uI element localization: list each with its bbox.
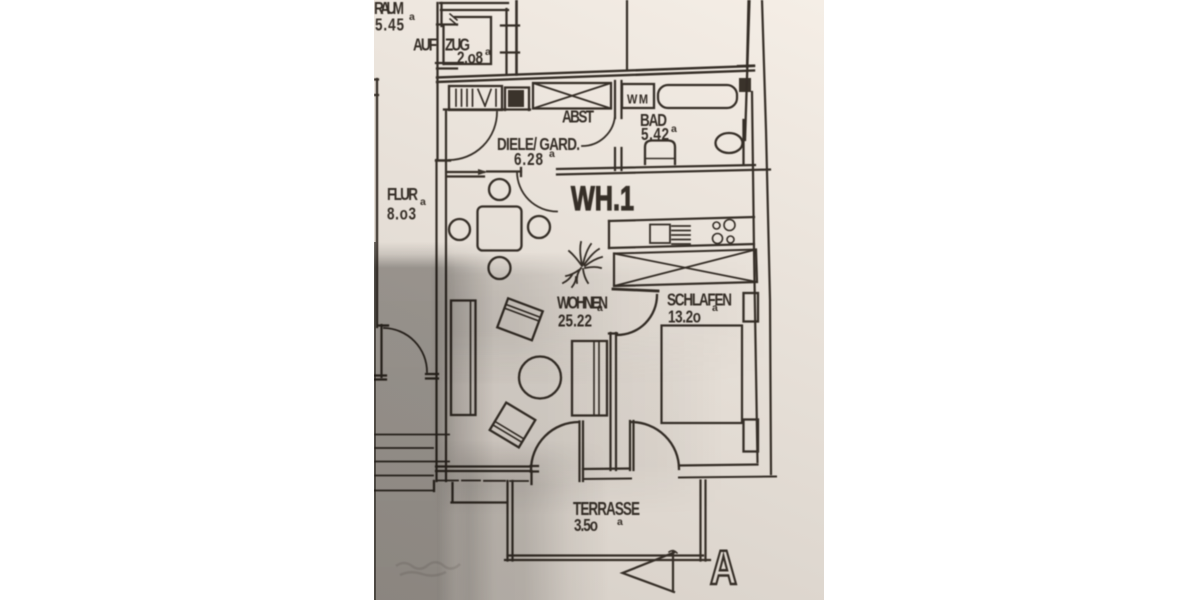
svg-text:a: a xyxy=(617,516,623,528)
svg-text:WH.1: WH.1 xyxy=(571,180,634,218)
svg-text:13.2o: 13.2o xyxy=(668,308,701,327)
svg-text:8.o3: 8.o3 xyxy=(387,205,416,224)
svg-text:a: a xyxy=(409,11,415,23)
svg-text:a: a xyxy=(549,148,555,160)
svg-text:a: a xyxy=(597,302,603,314)
svg-text:a: a xyxy=(671,123,677,135)
svg-text:2.o8: 2.o8 xyxy=(457,49,483,68)
svg-text:3.5o: 3.5o xyxy=(574,516,598,535)
svg-text:a: a xyxy=(712,302,718,314)
svg-text:A: A xyxy=(710,542,737,595)
svg-text:a: a xyxy=(485,46,491,58)
svg-text:AUF: AUF xyxy=(413,36,437,55)
svg-text:5.45: 5.45 xyxy=(375,16,404,35)
svg-text:ABST: ABST xyxy=(562,108,594,127)
svg-text:5.42: 5.42 xyxy=(641,125,669,144)
svg-text:a: a xyxy=(420,196,426,208)
svg-text:WM: WM xyxy=(627,92,650,107)
svg-text:FLUR: FLUR xyxy=(387,185,418,204)
svg-text:6.28: 6.28 xyxy=(514,150,543,169)
svg-text:25.22: 25.22 xyxy=(558,312,592,331)
